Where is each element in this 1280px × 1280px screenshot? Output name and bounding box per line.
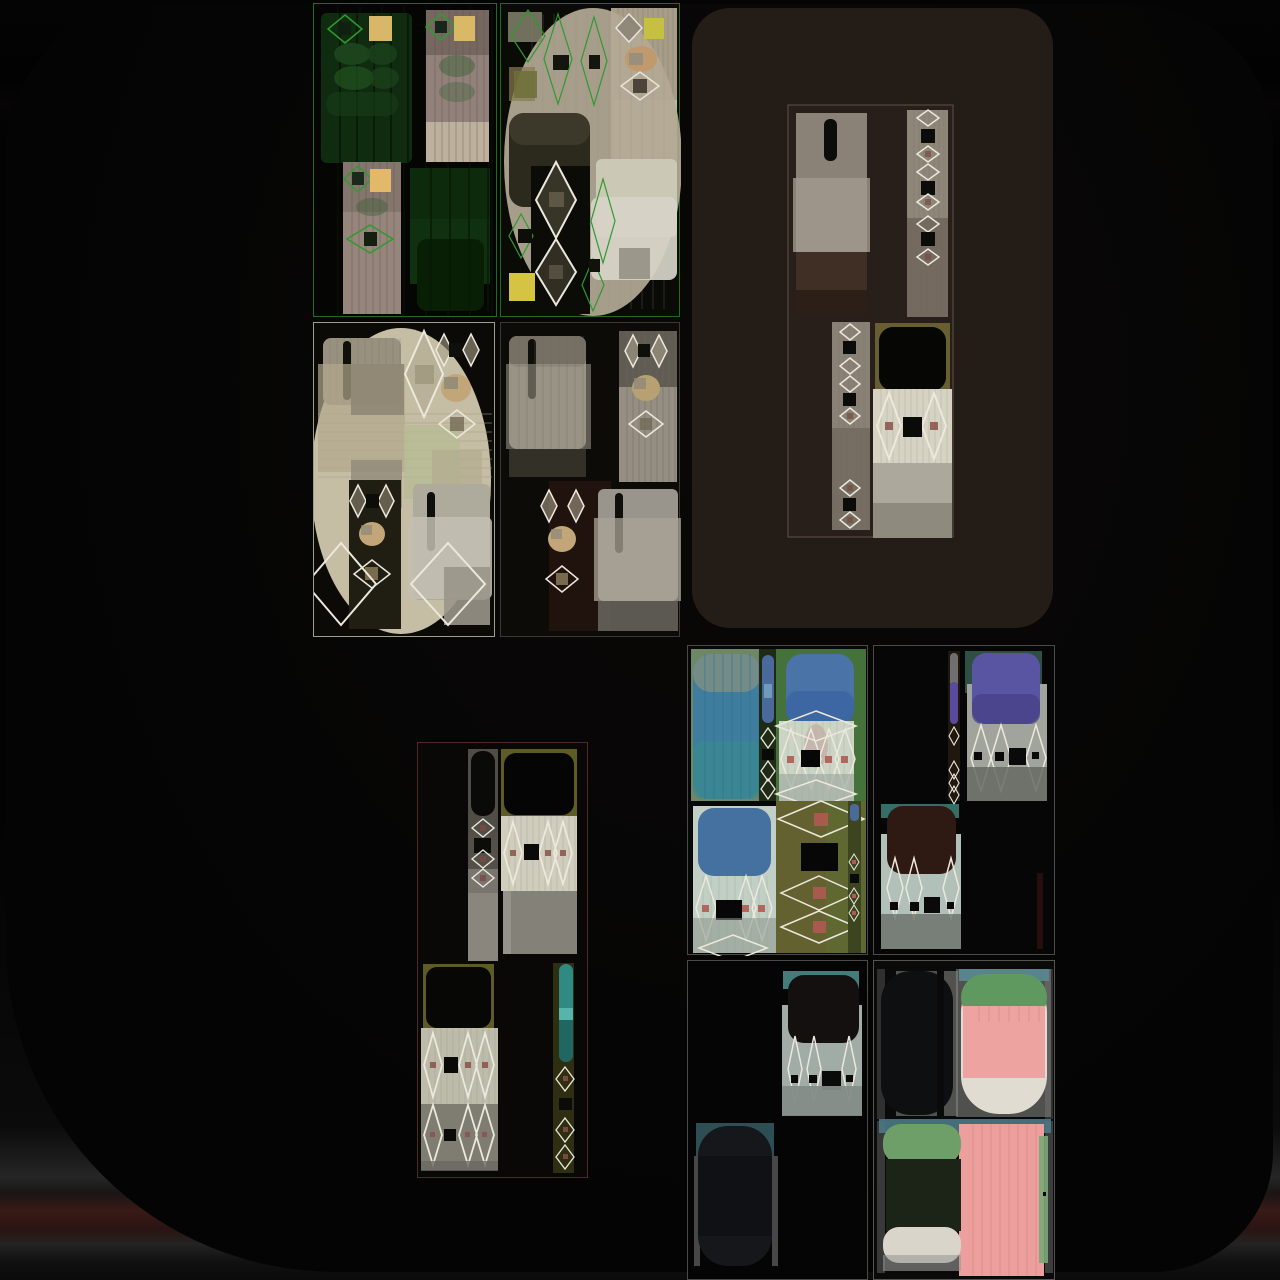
panel-maroon-frame — [417, 742, 588, 1178]
panel-pink-capsules — [873, 960, 1055, 1280]
panel-green-buses — [687, 645, 868, 955]
panel-purple-car — [873, 645, 1055, 955]
panel-dark-pair — [500, 322, 680, 637]
artwork-viewport — [0, 0, 1280, 1280]
art-grid — [0, 0, 1280, 1280]
panel-dark-capsule — [687, 960, 868, 1280]
panel-brown-rounded — [692, 8, 1053, 628]
panel-cream-ellipse — [313, 322, 495, 637]
panel-green-grid-b — [500, 3, 680, 317]
panel-green-grid-a — [313, 3, 497, 317]
